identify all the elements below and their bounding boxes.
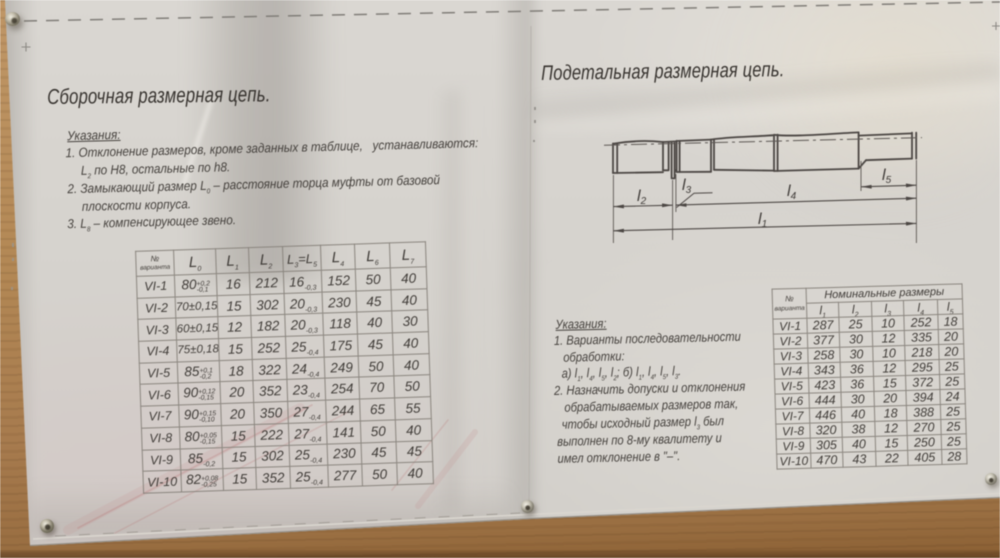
svg-text:l2: l2 [637,188,647,207]
svg-text:l4: l4 [787,183,797,202]
svg-text:l3: l3 [682,177,692,196]
svg-text:l5: l5 [882,167,892,186]
svg-text:l1: l1 [758,211,767,230]
